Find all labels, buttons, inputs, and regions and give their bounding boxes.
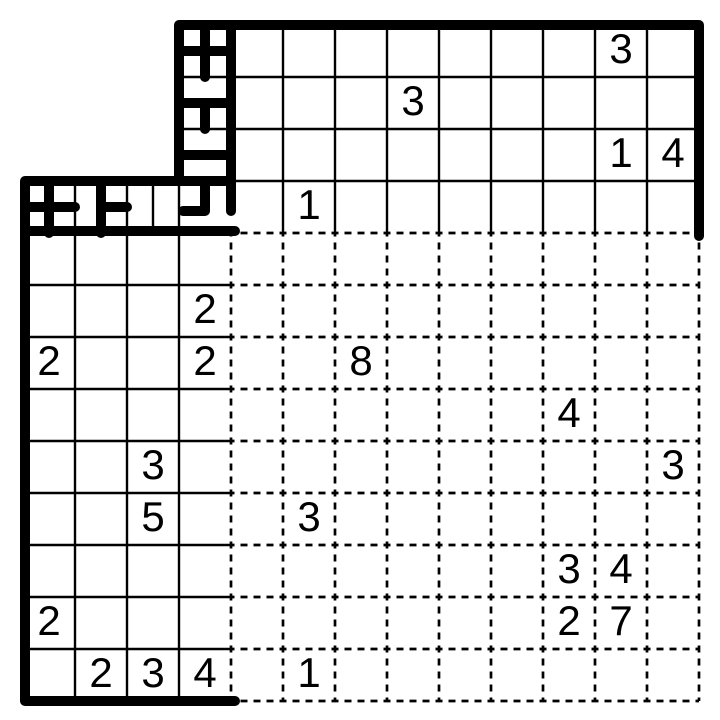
grid-cell[interactable]: [439, 233, 491, 285]
grid-cell[interactable]: [283, 597, 335, 649]
clue-number: 8: [349, 337, 372, 384]
grid-cell[interactable]: [491, 389, 543, 441]
grid-cell[interactable]: [335, 389, 387, 441]
clue-number: 3: [661, 441, 684, 488]
grid-cell[interactable]: [387, 337, 439, 389]
grid-cell[interactable]: [231, 337, 283, 389]
grid-cell[interactable]: [75, 285, 127, 337]
grid-cell[interactable]: [387, 389, 439, 441]
grid-cell[interactable]: [439, 181, 491, 233]
grid-cell[interactable]: [647, 181, 699, 233]
grid-cell[interactable]: [283, 233, 335, 285]
grid-cell[interactable]: [231, 77, 283, 129]
grid-cell[interactable]: [543, 233, 595, 285]
grid-cell[interactable]: [283, 389, 335, 441]
grid-cell[interactable]: [23, 285, 75, 337]
grid-cell[interactable]: [335, 181, 387, 233]
grid-cell[interactable]: [543, 25, 595, 77]
grid-cell[interactable]: [543, 285, 595, 337]
grid-cell[interactable]: [127, 337, 179, 389]
grid-cell[interactable]: [179, 233, 231, 285]
grid-cell[interactable]: [543, 649, 595, 701]
clue-number: 3: [609, 25, 632, 72]
grid-cell[interactable]: [491, 649, 543, 701]
grid-cell[interactable]: [387, 597, 439, 649]
grid-cell[interactable]: [595, 337, 647, 389]
grid-cell[interactable]: [23, 545, 75, 597]
grid-cell[interactable]: [647, 77, 699, 129]
grid-cell[interactable]: [179, 389, 231, 441]
grid-cell[interactable]: [335, 129, 387, 181]
grid-cell[interactable]: [127, 285, 179, 337]
grid-cell[interactable]: [283, 337, 335, 389]
grid-cell[interactable]: [595, 233, 647, 285]
grid-cell[interactable]: [543, 129, 595, 181]
grid-cell[interactable]: [491, 285, 543, 337]
grid-cell[interactable]: [335, 493, 387, 545]
grid-cell[interactable]: [179, 597, 231, 649]
grid-cell[interactable]: [387, 25, 439, 77]
grid-cell[interactable]: [179, 545, 231, 597]
clue-number: 1: [297, 649, 320, 696]
clue-number: 1: [297, 181, 320, 228]
grid-cell[interactable]: [491, 181, 543, 233]
grid-cell[interactable]: [387, 181, 439, 233]
grid-cell[interactable]: [283, 25, 335, 77]
clue-number: 2: [193, 337, 216, 384]
grid-cell[interactable]: [491, 25, 543, 77]
grid-cell[interactable]: [283, 77, 335, 129]
grid-cell[interactable]: [647, 285, 699, 337]
grid-cell[interactable]: [491, 597, 543, 649]
clue-number: 3: [297, 493, 320, 540]
clue-number: 2: [37, 337, 60, 384]
grid-cell[interactable]: [439, 597, 491, 649]
grid-cell[interactable]: [231, 545, 283, 597]
clue-number: 4: [557, 389, 580, 436]
grid-cell[interactable]: [387, 233, 439, 285]
grid-cell[interactable]: [647, 337, 699, 389]
clue-number: 3: [557, 545, 580, 592]
grid-cell[interactable]: [283, 545, 335, 597]
grid-cell[interactable]: [595, 441, 647, 493]
grid-cell[interactable]: [387, 493, 439, 545]
grid-cell[interactable]: [491, 233, 543, 285]
grid-cell[interactable]: [595, 389, 647, 441]
grid-cell[interactable]: [491, 493, 543, 545]
clue-number: 1: [609, 129, 632, 176]
grid-cell[interactable]: [231, 649, 283, 701]
grid-cell[interactable]: [543, 77, 595, 129]
grid-cell[interactable]: [335, 285, 387, 337]
grid-cell[interactable]: [283, 129, 335, 181]
grid-cell[interactable]: [647, 493, 699, 545]
grid-cell[interactable]: [231, 493, 283, 545]
grid-cell[interactable]: [335, 233, 387, 285]
grid-cell[interactable]: [75, 441, 127, 493]
grid-cell[interactable]: [231, 129, 283, 181]
grid-cell[interactable]: [387, 285, 439, 337]
clue-number: 3: [141, 649, 164, 696]
grid-cell[interactable]: [231, 181, 283, 233]
grid-cell[interactable]: [231, 389, 283, 441]
grid-cell[interactable]: [439, 649, 491, 701]
grid-cell[interactable]: [231, 597, 283, 649]
grid-cell[interactable]: [231, 233, 283, 285]
grid-cell[interactable]: [647, 25, 699, 77]
clue-number: 5: [141, 493, 164, 540]
grid-cell[interactable]: [647, 389, 699, 441]
grid-cell[interactable]: [75, 337, 127, 389]
grid-cell[interactable]: [595, 285, 647, 337]
grid-cell[interactable]: [127, 181, 179, 233]
grid-cell[interactable]: [595, 77, 647, 129]
grid-cell[interactable]: [335, 77, 387, 129]
clue-number: 2: [557, 597, 580, 644]
clue-number: 3: [141, 441, 164, 488]
grid-cell[interactable]: [75, 493, 127, 545]
clue-number: 2: [193, 285, 216, 332]
grid-cell[interactable]: [647, 649, 699, 701]
grid-cell[interactable]: [439, 441, 491, 493]
grid-cell[interactable]: [23, 649, 75, 701]
clue-number: 3: [401, 77, 424, 124]
clue-number: 4: [193, 649, 216, 696]
grid-cell[interactable]: [23, 493, 75, 545]
grid-cell[interactable]: [335, 441, 387, 493]
grid-cell[interactable]: [439, 493, 491, 545]
puzzle-board[interactable]: 33141222843353342272341: [0, 0, 720, 720]
grid-cell[interactable]: [231, 285, 283, 337]
grid-cell[interactable]: [23, 233, 75, 285]
grid-cell[interactable]: [491, 545, 543, 597]
grid-cell[interactable]: [231, 25, 283, 77]
grid-cell[interactable]: [647, 597, 699, 649]
grid-cell[interactable]: [387, 649, 439, 701]
grid-cell[interactable]: [647, 233, 699, 285]
puzzle-page: 33141222843353342272341: [0, 0, 720, 720]
grid-cell[interactable]: [335, 597, 387, 649]
grid-cell[interactable]: [387, 441, 439, 493]
grid-cell[interactable]: [283, 441, 335, 493]
grid-cell[interactable]: [335, 25, 387, 77]
grid-cell[interactable]: [335, 649, 387, 701]
grid-cell[interactable]: [543, 181, 595, 233]
grid-cell[interactable]: [75, 233, 127, 285]
grid-cell[interactable]: [439, 389, 491, 441]
clue-number: 2: [89, 649, 112, 696]
grid-cell[interactable]: [439, 77, 491, 129]
grid-cell[interactable]: [439, 25, 491, 77]
grid-cell[interactable]: [491, 77, 543, 129]
grid-cell[interactable]: [491, 337, 543, 389]
grid-cell[interactable]: [387, 129, 439, 181]
grid-cell[interactable]: [335, 545, 387, 597]
grid-cell[interactable]: [543, 493, 595, 545]
clue-number: 2: [37, 597, 60, 644]
grid-cell[interactable]: [439, 545, 491, 597]
grid-cell[interactable]: [595, 649, 647, 701]
grid-cell[interactable]: [283, 285, 335, 337]
grid-cell[interactable]: [439, 129, 491, 181]
grid-cell[interactable]: [23, 441, 75, 493]
grid-cell[interactable]: [387, 545, 439, 597]
grid-cell[interactable]: [595, 181, 647, 233]
grid-cell[interactable]: [595, 493, 647, 545]
clue-number: 7: [609, 597, 632, 644]
grid-cell[interactable]: [127, 389, 179, 441]
grid-cell[interactable]: [543, 441, 595, 493]
grid-cell[interactable]: [179, 493, 231, 545]
grid-cell[interactable]: [127, 233, 179, 285]
grid-cell[interactable]: [543, 337, 595, 389]
grid-cell[interactable]: [231, 441, 283, 493]
grid-cell[interactable]: [75, 597, 127, 649]
grid-cell[interactable]: [491, 129, 543, 181]
clue-number: 4: [609, 545, 632, 592]
grid-cell[interactable]: [491, 441, 543, 493]
grid-cell[interactable]: [127, 597, 179, 649]
grid-cell[interactable]: [127, 545, 179, 597]
grid-cell[interactable]: [75, 545, 127, 597]
clue-number: 4: [661, 129, 684, 176]
grid-cell[interactable]: [439, 337, 491, 389]
grid-cell[interactable]: [647, 545, 699, 597]
grid-cell[interactable]: [75, 389, 127, 441]
grid-cell[interactable]: [179, 441, 231, 493]
grid-cell[interactable]: [439, 285, 491, 337]
grid-cell[interactable]: [23, 389, 75, 441]
